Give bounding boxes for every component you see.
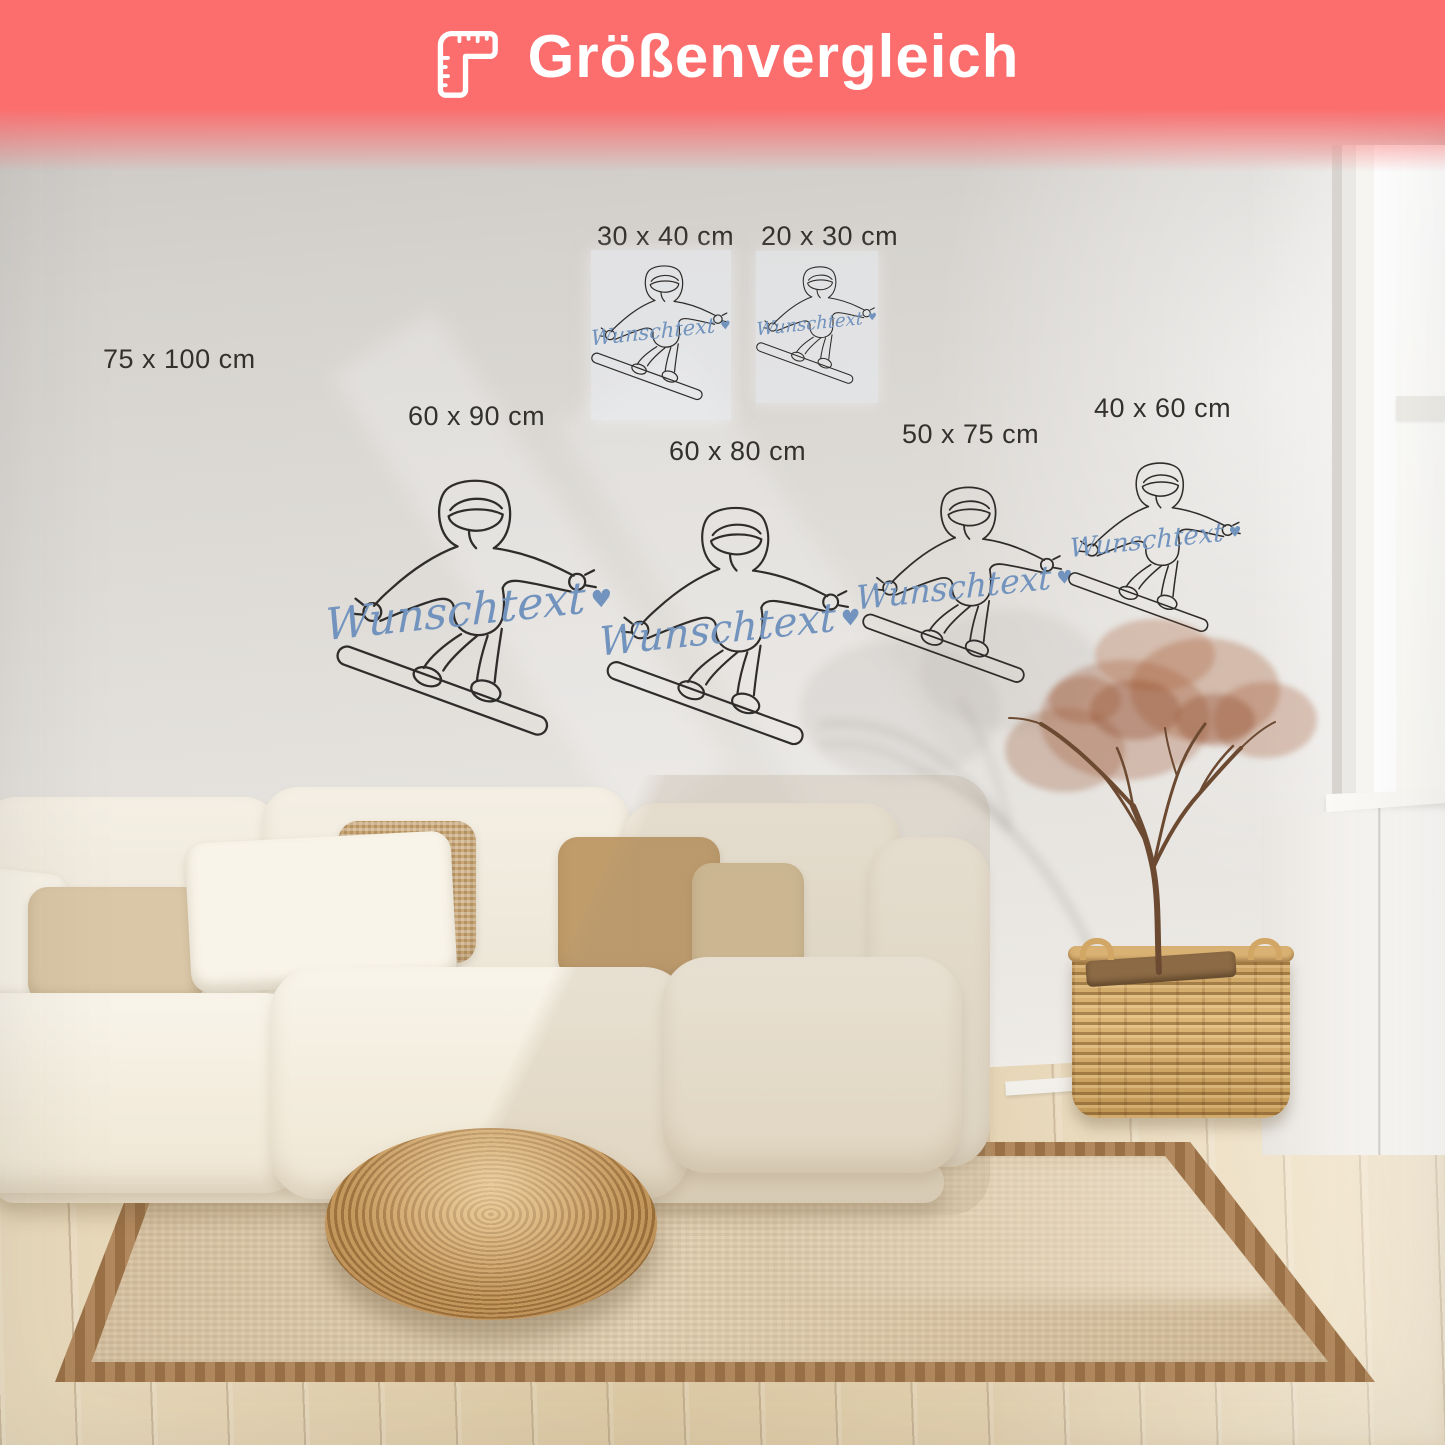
- poster-60x90: Wunschtext♥: [336, 466, 602, 758]
- size-label-30x40: 30 x 40 cm: [597, 223, 734, 250]
- sofa-seat-cushion: [662, 957, 962, 1173]
- banner: Größenvergleich: [0, 0, 1445, 178]
- poster-30x40: Wunschtext♥: [591, 250, 731, 420]
- sofa-seat-cushion: [0, 993, 310, 1193]
- banner-title: Größenvergleich: [528, 24, 1020, 90]
- size-label-60x90: 60 x 90 cm: [408, 403, 545, 430]
- size-label-40x60: 40 x 60 cm: [1094, 395, 1231, 422]
- heart-icon: ♥: [720, 318, 730, 333]
- product-mockup-scene: 75 x 100 cm 30 x 40 cm 20 x 30 cm 60 x 9…: [0, 0, 1445, 1445]
- heart-icon: ♥: [1229, 524, 1242, 541]
- poster-60x80: Wunschtext♥: [604, 498, 856, 762]
- poster-20x30: Wunschtext♥: [756, 251, 878, 403]
- size-label-50x75: 50 x 75 cm: [902, 421, 1039, 448]
- size-label-60x80: 60 x 80 cm: [669, 438, 806, 465]
- throw-pillow: [28, 887, 204, 1003]
- rattan-pouf: [325, 1128, 657, 1320]
- size-label-20x30: 20 x 30 cm: [761, 223, 898, 250]
- heart-icon: ♥: [868, 312, 877, 324]
- dried-tree: [975, 600, 1335, 980]
- ruler-icon: [426, 26, 502, 102]
- size-label-75x100: 75 x 100 cm: [103, 346, 256, 373]
